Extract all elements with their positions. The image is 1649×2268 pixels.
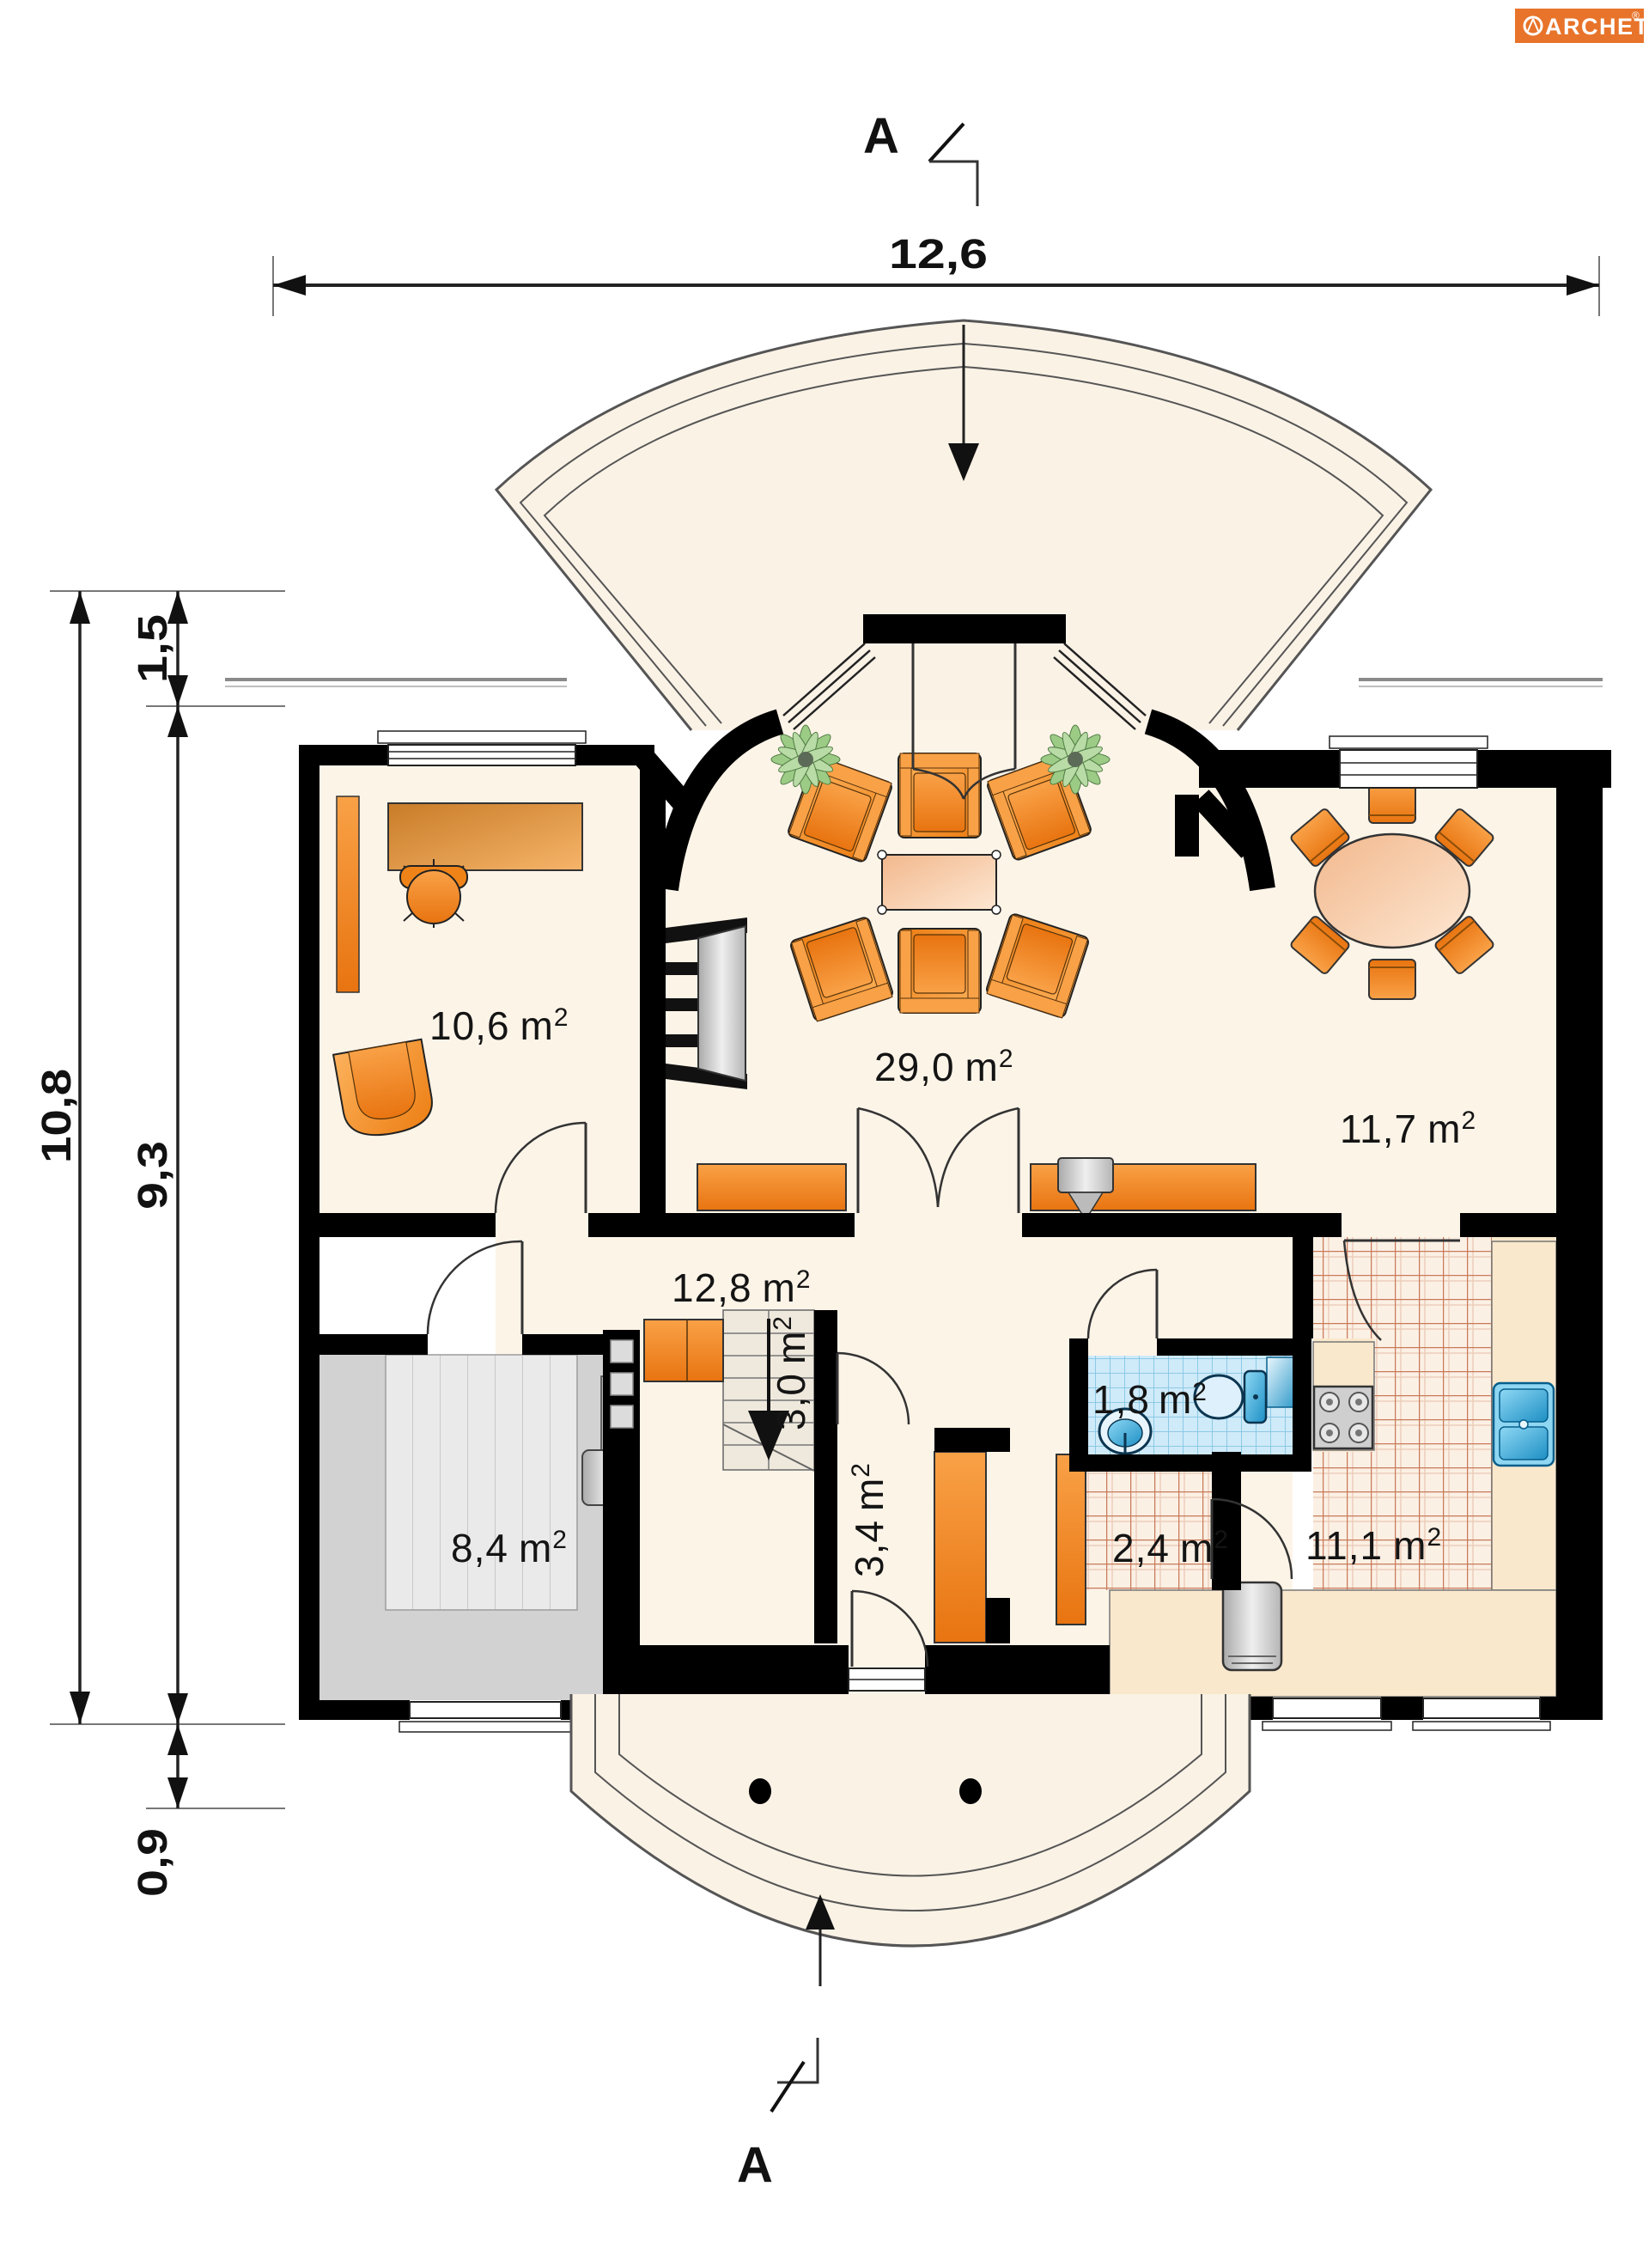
kitchen-counter-bottom xyxy=(1110,1590,1556,1697)
ground-line-right xyxy=(1359,680,1603,686)
label-living-room: 29,0m2 xyxy=(874,1045,1014,1089)
dim-house-depth: 9,3 xyxy=(131,1141,176,1210)
dim-rear-terrace-depth: 0,9 xyxy=(131,1828,176,1897)
section-marker-top: A xyxy=(863,108,977,206)
terrace-column-right xyxy=(959,1778,982,1804)
label-office: 10,6m2 xyxy=(429,1003,569,1048)
label-hall: 12,8m2 xyxy=(672,1265,812,1310)
terrace-column-left xyxy=(749,1778,771,1804)
dim-front-terrace-depth: 1,5 xyxy=(131,614,176,683)
rear-terrace xyxy=(571,1694,1250,1986)
plant-left xyxy=(771,725,840,794)
coffee-table xyxy=(878,850,1001,914)
dining-table-set xyxy=(1290,783,1495,999)
corridor-wardrobe xyxy=(934,1452,986,1643)
sideboard-left xyxy=(697,1164,846,1210)
dimension-left: 10,8 1,5 9,3 0,9 xyxy=(34,591,285,1897)
floor-plan-page: 10,6m2 29,0m2 11,7m2 12,8m2 3,0m2 3,4m2 … xyxy=(0,0,1649,2268)
stove xyxy=(1314,1387,1372,1448)
office-desk xyxy=(388,803,582,870)
kitchen-window-right xyxy=(1413,1698,1550,1730)
hall-cabinet xyxy=(644,1320,723,1381)
section-marker-bottom: A xyxy=(737,2038,818,2193)
dim-overall-width: 12,6 xyxy=(889,232,988,277)
plant-right xyxy=(1041,725,1110,794)
brand-logo: ARCHETON ® xyxy=(1515,9,1649,43)
label-dining-room: 11,7m2 xyxy=(1340,1107,1476,1151)
section-letter-top: A xyxy=(863,108,899,164)
garage-window xyxy=(399,1702,571,1732)
logo-registered-mark: ® xyxy=(1632,9,1640,21)
pantry-wardrobe xyxy=(1056,1454,1086,1625)
dim-total-depth: 10,8 xyxy=(34,1069,80,1163)
ground-line-left xyxy=(225,680,567,686)
kitchen-window-left xyxy=(1263,1698,1391,1730)
rear-door-threshold xyxy=(849,1668,925,1691)
dimension-width: 12,6 xyxy=(273,232,1599,316)
kitchen-sink xyxy=(1494,1383,1554,1466)
fridge xyxy=(1223,1582,1281,1670)
label-kitchen: 11,1m2 xyxy=(1305,1523,1442,1568)
office-shelf xyxy=(337,796,359,992)
section-letter-bottom: A xyxy=(737,2137,773,2193)
dining-window xyxy=(1330,736,1488,788)
office-window xyxy=(378,731,586,765)
floor-plan-drawing: 10,6m2 29,0m2 11,7m2 12,8m2 3,0m2 3,4m2 … xyxy=(0,0,1649,2268)
